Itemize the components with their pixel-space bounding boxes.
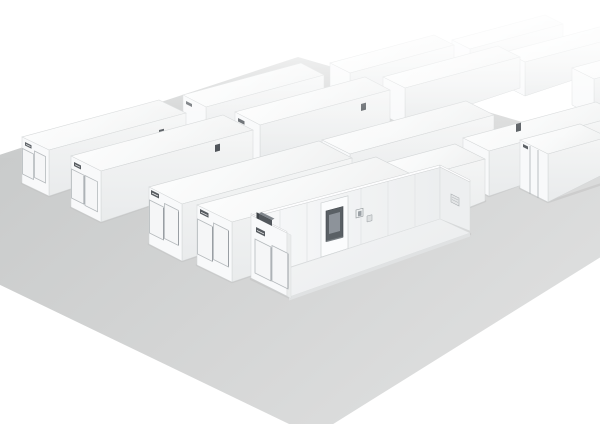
- fade-veil: [0, 0, 600, 424]
- render-canvas: [0, 0, 600, 424]
- cold-room-scene: [0, 0, 600, 424]
